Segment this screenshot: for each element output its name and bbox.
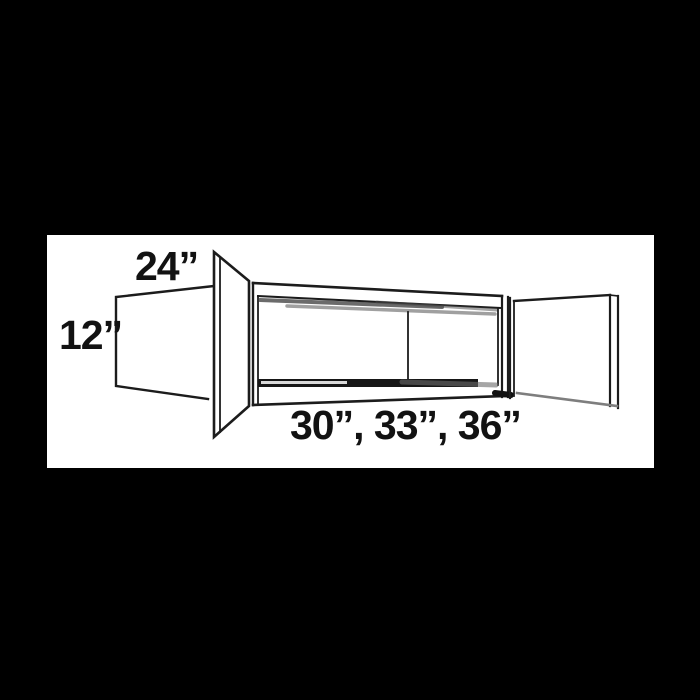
cabinet-interior-top-shading xyxy=(260,300,497,314)
diagram-panel: 24” 12” 30”, 33”, 36” xyxy=(47,235,654,468)
cabinet-left-stile xyxy=(253,283,258,405)
dimension-label-depth: 24” xyxy=(135,246,198,287)
cabinet-right-door xyxy=(510,295,618,408)
cabinet-interior-edges xyxy=(408,308,498,385)
cabinet-side-panel xyxy=(116,286,214,399)
cabinet-interior-bottom-shelf xyxy=(258,379,511,395)
cabinet-left-door xyxy=(214,252,249,437)
dimension-label-widths: 30”, 33”, 36” xyxy=(290,405,521,446)
page-background: 24” 12” 30”, 33”, 36” xyxy=(0,0,700,700)
dimension-label-height: 12” xyxy=(59,315,122,356)
